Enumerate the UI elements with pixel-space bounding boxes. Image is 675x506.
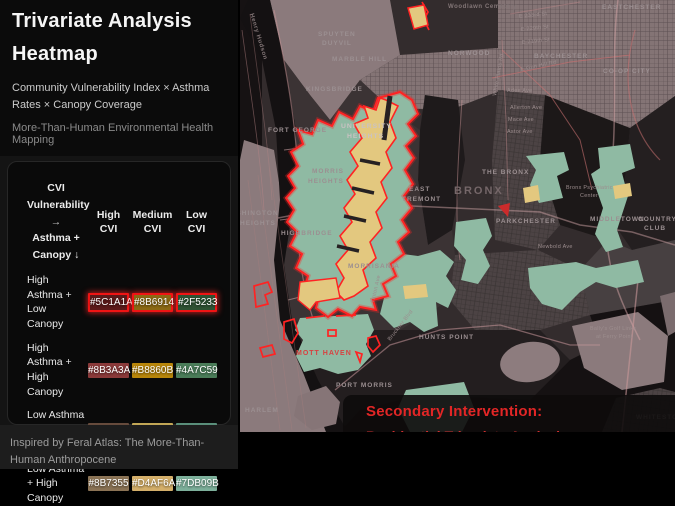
basemap-svg[interactable]: Henry Hudson SPUYTEN DUYVIL MARBLE HILL … xyxy=(240,0,675,432)
zone-khaki-patch-1[interactable] xyxy=(523,185,540,203)
map-label-bronx-big: BRONX xyxy=(454,185,504,197)
legend-swatch[interactable]: #8B7355 xyxy=(88,476,129,491)
map-label-mott-haven: MOTT HAVEN xyxy=(296,350,352,357)
map-label-astor-ave: Astor Ave xyxy=(507,129,533,135)
map-label-hunts-point: HUNTS POINT xyxy=(419,334,474,341)
page-title: Trivariate Analysis Heatmap xyxy=(12,5,226,71)
map-label-mace-ave: Mace Ave xyxy=(508,117,534,123)
legend-swatch[interactable]: #5C1A1A xyxy=(88,293,129,312)
zone-mott-haven-teal[interactable] xyxy=(295,314,374,374)
map-label-spuyten-duyvil-2: DUYVIL xyxy=(322,40,352,47)
map-label-country-club: COUNTRY xyxy=(638,216,675,223)
legend-col-medium-cvi: Medium CVI xyxy=(132,208,173,236)
map-label-east-tremont: EAST xyxy=(409,186,430,193)
map-label-baychester: BAYCHESTER xyxy=(534,53,588,60)
callout-title: Secondary Intervention: xyxy=(366,403,675,420)
map-label-spuyten-duyvil: SPUYTEN xyxy=(318,31,356,38)
secondary-intervention-callout: Secondary Intervention: Residential Triv… xyxy=(343,395,675,432)
legend-col-high-cvi: High CVI xyxy=(88,208,129,236)
legend-row-label: High Asthma + High Canopy xyxy=(27,341,85,400)
legend-panel: CVI Vulnerability → Asthma + Canopy ↓ Hi… xyxy=(7,161,231,425)
map-label-golf-links: Bally's Golf Links xyxy=(590,326,636,332)
legend-swatch[interactable]: #2F5233 xyxy=(176,293,217,312)
map-label-university-heights-2: HEIGHTS xyxy=(347,133,384,140)
map-label-fort-george: FORT GEORGE xyxy=(268,127,327,134)
legend-swatch[interactable]: #D4AF6A xyxy=(132,476,173,491)
legend-corner-line1: CVI Vulnerability xyxy=(27,180,85,214)
map-label-bronx-psychiatric: Bronx Psychiatric xyxy=(566,185,613,191)
map-label-highbridge: HIGHBRIDGE xyxy=(281,230,333,237)
page-subtitle: Community Vulnerability Index × Asthma R… xyxy=(12,80,226,113)
map-label-golf-links-2: at Ferry Point xyxy=(596,334,633,340)
sidebar-header: Trivariate Analysis Heatmap Community Vu… xyxy=(0,0,238,156)
map-label-kingsbridge: KINGSBRIDGE xyxy=(306,86,363,93)
map-label-east-tremont-2: TREMONT xyxy=(402,196,441,203)
legend-swatch[interactable]: #8B6914 xyxy=(132,293,173,312)
legend-swatch[interactable]: #7DB09B xyxy=(176,476,217,491)
legend-col-low-cvi: Low CVI xyxy=(176,208,217,236)
map-label-morrisania: MORRISANIA xyxy=(348,263,400,270)
map-label-norwood: NORWOOD xyxy=(448,50,490,57)
legend-swatch[interactable]: #B8860B xyxy=(132,363,173,378)
map-label-country-club-2: CLUB xyxy=(644,225,666,232)
callout-line2: Residential Trivariate Analysis xyxy=(366,428,675,432)
map-canvas[interactable]: Henry Hudson SPUYTEN DUYVIL MARBLE HILL … xyxy=(240,0,675,432)
map-label-harlem: HARLEM xyxy=(245,407,279,414)
map-label-newbold-ave: Newbold Ave xyxy=(538,244,573,250)
map-label-washington-heights-2: HEIGHTS xyxy=(240,220,276,227)
map-label-port-morris: PORT MORRIS xyxy=(336,382,393,389)
map-label-university-heights: UNIVERSITY xyxy=(341,123,392,130)
right-arrow-icon: → xyxy=(27,214,85,231)
map-label-washington-heights: WASHINGTON xyxy=(240,210,279,217)
sidebar: Trivariate Analysis Heatmap Community Vu… xyxy=(0,0,240,432)
zone-soundview-khaki[interactable] xyxy=(403,284,428,299)
map-label-adee-ave: Adee Ave xyxy=(507,88,532,94)
page-tagline: More-Than-Human Environmental Health Map… xyxy=(12,122,226,146)
legend-corner-header: CVI Vulnerability → Asthma + Canopy ↓ xyxy=(27,180,85,264)
map-label-eastchester: EASTCHESTER xyxy=(602,4,661,11)
legend-swatch[interactable]: #8B3A3A xyxy=(88,363,129,378)
legend-swatch[interactable]: #4A7C59 xyxy=(176,363,217,378)
map-label-woodlawn-cemetery: Woodlawn Cemetery xyxy=(448,4,517,10)
map-label-morris-heights: MORRIS xyxy=(312,168,344,175)
map-label-coop-city: CO-OP CITY xyxy=(603,68,651,75)
map-label-middletown: MIDDLETOWN xyxy=(590,216,645,223)
app-window: Trivariate Analysis Heatmap Community Vu… xyxy=(0,0,675,432)
legend-row-label: High Asthma + Low Canopy xyxy=(27,273,85,332)
legend-corner-line2: Asthma + Canopy ↓ xyxy=(27,230,85,264)
map-label-allerton-ave: Allerton Ave xyxy=(510,105,542,111)
map-label-marble-hill: MARBLE HILL xyxy=(332,56,387,63)
map-label-parkchester: PARKCHESTER xyxy=(496,218,556,225)
map-label-bronx-psychiatric-2: Center xyxy=(580,193,598,199)
map-label-the-bronx: THE BRONX xyxy=(482,169,529,176)
map-label-morris-heights-2: HEIGHTS xyxy=(308,178,344,185)
